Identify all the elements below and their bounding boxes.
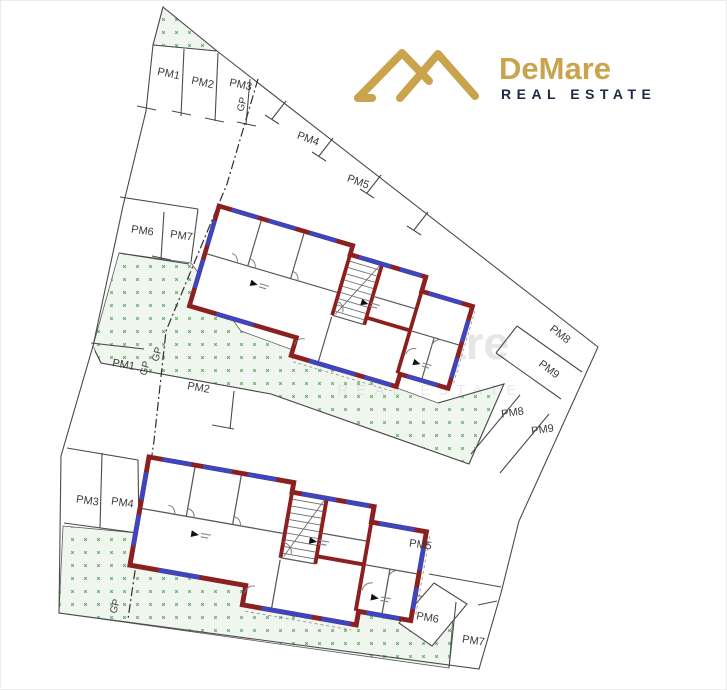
logo-roofs-icon xyxy=(358,53,475,98)
parking-label: PM3 xyxy=(75,494,99,509)
parking-label: PM2 xyxy=(186,380,210,396)
parking-label: PM5 xyxy=(345,173,370,192)
parking-label: PM9 xyxy=(531,423,555,438)
parking-label: PM4 xyxy=(295,130,320,149)
stalls-upper-pm4-pm5 xyxy=(265,101,428,235)
parking-label: PM6 xyxy=(130,224,154,239)
stalls-lower-pm3-pm4 xyxy=(64,448,139,533)
parking-label: PM1 xyxy=(156,66,181,82)
logo-brand-text: DeMare xyxy=(499,51,611,86)
site-plan-drawing: DeMare REAL ESTATE xyxy=(1,1,727,690)
parking-label: PM7 xyxy=(461,634,485,649)
parking-label: PM1 xyxy=(111,357,135,373)
stalls-lower-pm1-pm2 xyxy=(212,391,234,429)
parking-label: PM8 xyxy=(547,323,572,346)
parking-label: PM7 xyxy=(169,229,193,244)
site-plan-page: DeMare REAL ESTATE xyxy=(0,0,727,690)
parking-label: PM8 xyxy=(501,406,525,421)
parking-label: PM4 xyxy=(110,496,134,511)
parking-label: PM2 xyxy=(190,75,215,91)
parking-label: PM9 xyxy=(536,358,561,381)
logo-tagline-text: REAL ESTATE xyxy=(501,86,656,102)
parking-label: PM3 xyxy=(228,77,253,93)
stall-lower-pm5 xyxy=(429,574,501,587)
landscape-top-triangle xyxy=(153,7,217,51)
logo: DeMare REAL ESTATE xyxy=(358,51,656,102)
